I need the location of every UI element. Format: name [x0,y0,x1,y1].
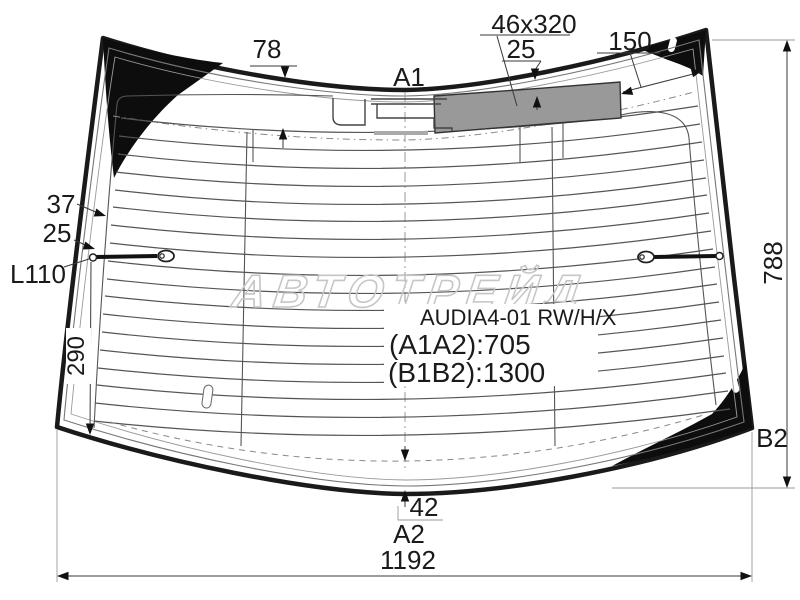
dim-antenna-lead: L110 [10,259,66,289]
dim-top-edge-offset: 78 [253,34,282,64]
diagram-canvas: АВТОТРЕЙД [0,0,800,600]
dim-left-edge-offset: 25 [43,218,72,248]
glass-diagram: АВТОТРЕЙД [0,0,800,600]
dim-stoplight-right-gap: 150 [608,26,651,56]
dim-bottom-edge-offset: 42 [410,492,439,522]
part-dim-a1a2: (A1A2):705 [389,329,531,360]
dim-glass-height: 788 [758,241,788,284]
point-b2-label: B2 [756,423,788,453]
point-a1-label: A1 [393,62,425,92]
dim-lower-left-height: 290 [63,336,90,376]
part-dim-b1b2: (B1B2):1300 [388,357,545,388]
part-code: AUDIA4-01 RW/H/X [420,305,617,330]
dim-glass-width: 1192 [380,545,436,575]
dim-stoplight-offset: 25 [507,34,536,64]
dim-left-band-width: 37 [47,189,76,219]
